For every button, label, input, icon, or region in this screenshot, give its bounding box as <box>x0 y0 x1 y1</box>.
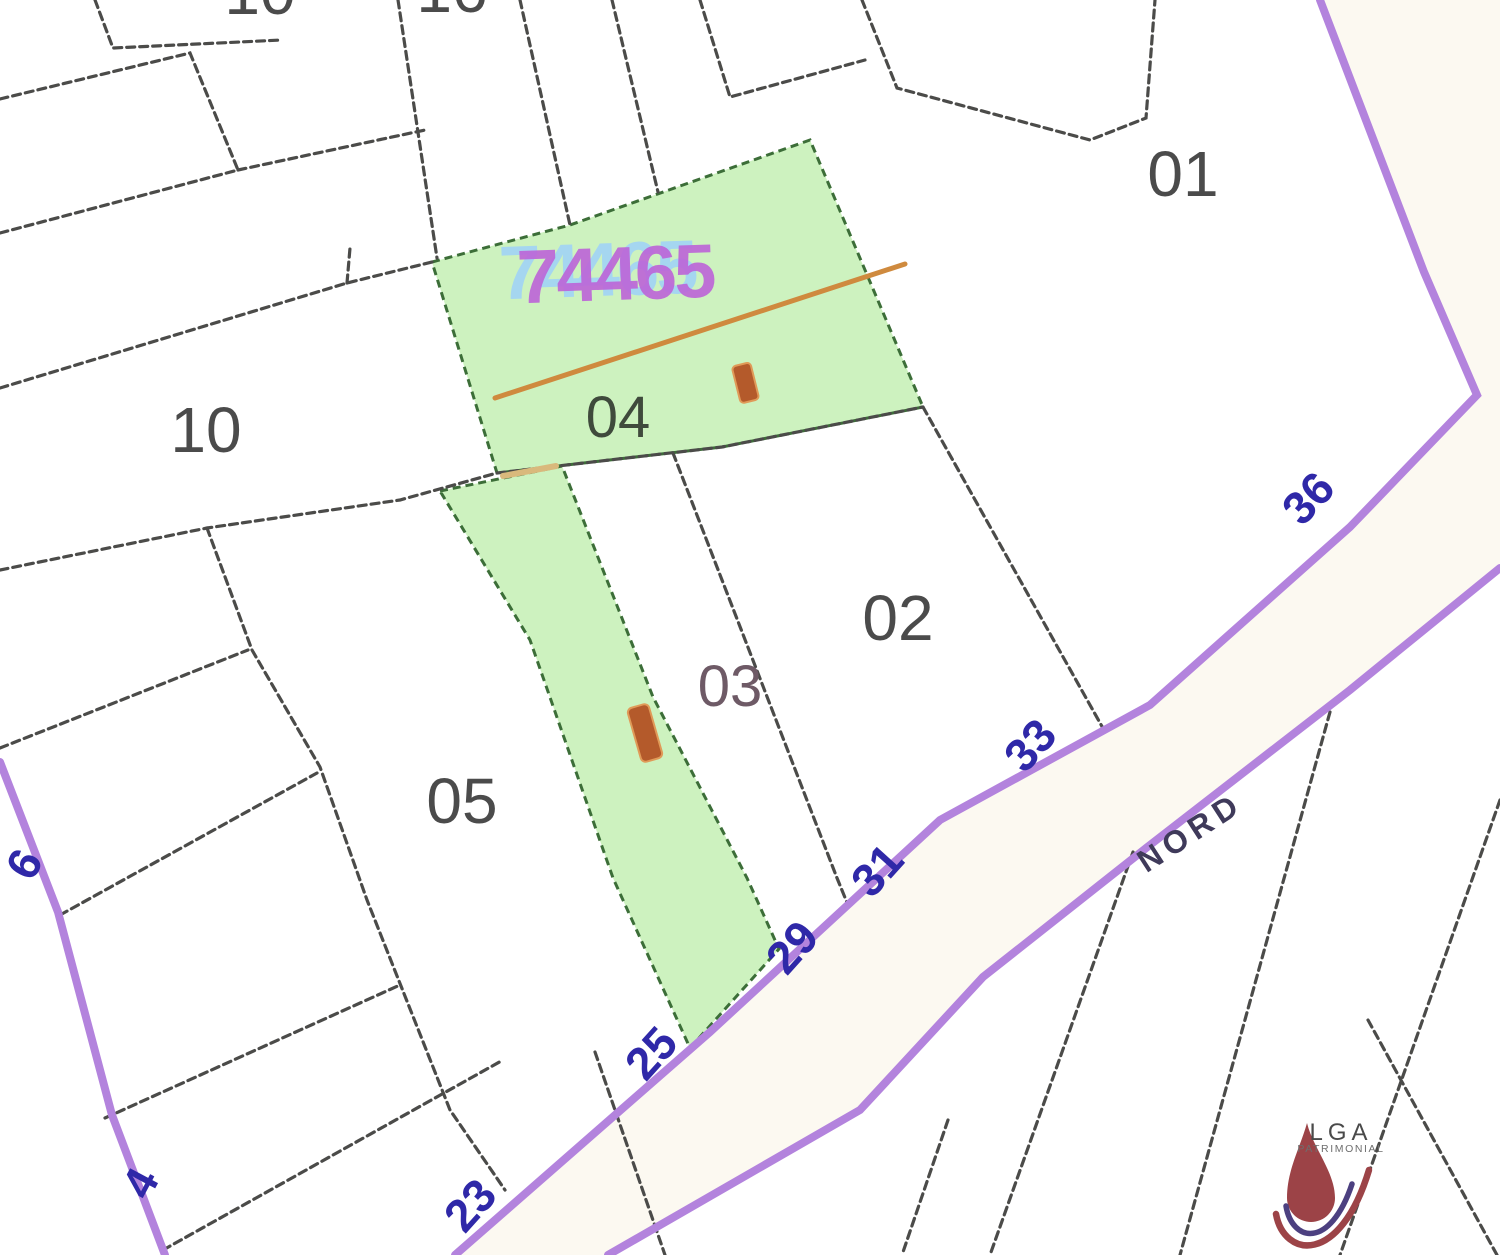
parcel-label-10: 10 <box>170 394 241 466</box>
parcel-label-top-partial-b: 16 <box>416 0 487 26</box>
logo-subtitle-text: PATRIMONIAL <box>1297 1143 1384 1155</box>
parcel-label-05: 05 <box>426 765 497 837</box>
parcel-label-top-partial-a: 10 <box>224 0 295 28</box>
cadastre-number: 74465 <box>516 229 717 321</box>
parcel-label-01: 01 <box>1147 138 1218 210</box>
logo-brand-text: LGA <box>1309 1119 1372 1146</box>
map-canvas[interactable]: 74465 74465 10 04 05 03 02 01 10 16 36 3… <box>0 0 1500 1255</box>
parcel-label-04: 04 <box>586 385 651 450</box>
parcel-label-03: 03 <box>698 654 763 719</box>
cadastral-map-view[interactable]: 74465 74465 10 04 05 03 02 01 10 16 36 3… <box>0 0 1500 1255</box>
parcel-label-02: 02 <box>862 582 933 654</box>
